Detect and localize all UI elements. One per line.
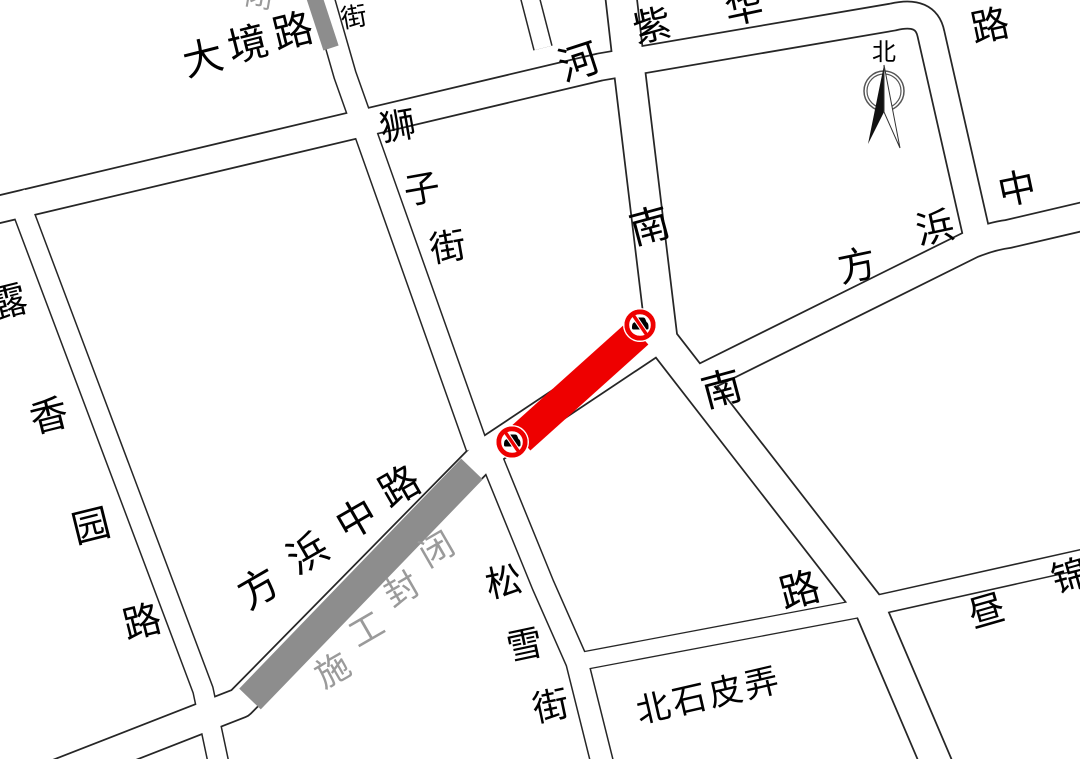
label-luxiangyuan-char-3: 路: [118, 596, 166, 648]
label-zhoujin-char-0: 昼: [964, 587, 1010, 636]
label-beishipi: 北石皮弄: [632, 660, 785, 732]
label-shizi-char-0: 狮: [377, 104, 420, 151]
no-entry-icon-northeast: [623, 308, 657, 342]
road-beishipi: [577, 607, 868, 662]
label-fangbang-west-char-1: 浜: [279, 524, 337, 584]
label-fangbang-east-char-1: 浜: [912, 203, 958, 254]
label-henan-char-1: 南: [625, 200, 676, 255]
map-svg: 大 境 路 街 闭 狮 子 街 河 南 南 路 紫 华 路 方 浜 中 方 浜 …: [0, 0, 1080, 759]
road-luxiangyuan: [16, 193, 220, 759]
street-labels: 大 境 路 街 闭 狮 子 街 河 南 南 路 紫 华 路 方 浜 中 方 浜 …: [0, 0, 1080, 732]
compass-north-label: 北: [872, 38, 896, 66]
label-dajing-char-0: 大: [178, 32, 228, 86]
label-songxue-char-0: 松: [482, 559, 526, 607]
label-shizi-char-2: 街: [427, 225, 470, 272]
label-zihua-char-0: 紫: [629, 1, 675, 52]
road-fangbang-east: [688, 216, 1080, 385]
label-construction-char-0: 施: [308, 645, 357, 697]
label-zihua-char-2: 路: [967, 1, 1013, 52]
label-jie-top: 街: [339, 1, 370, 35]
label-luxiangyuan-char-1: 香: [25, 390, 73, 442]
label-dajing-char-2: 路: [268, 5, 318, 59]
label-shizi-char-1: 子: [401, 167, 444, 214]
road-map: 大 境 路 街 闭 狮 子 街 河 南 南 路 紫 华 路 方 浜 中 方 浜 …: [0, 0, 1080, 759]
road-stub: [528, 0, 543, 48]
compass: 北: [864, 38, 904, 148]
label-fangbang-west-char-0: 方: [230, 559, 288, 619]
label-songxue-char-1: 雪: [503, 622, 547, 670]
road-dajing-zihua-outline: [0, 15, 976, 232]
label-dajing-char-1: 境: [223, 18, 273, 72]
no-entry-icon-southwest: [495, 425, 529, 459]
road-dajing-zihua: [0, 15, 976, 232]
label-fangbang-east-char-2: 中: [994, 164, 1040, 215]
label-luxiangyuan-char-2: 园: [67, 500, 115, 552]
closure-band-red: [520, 333, 638, 439]
label-fangbang-east-char-0: 方: [834, 241, 880, 292]
label-songxue-char-2: 街: [529, 683, 573, 731]
label-luxiangyuan-char-0: 露: [0, 276, 32, 328]
road-shizi: [320, 0, 477, 447]
